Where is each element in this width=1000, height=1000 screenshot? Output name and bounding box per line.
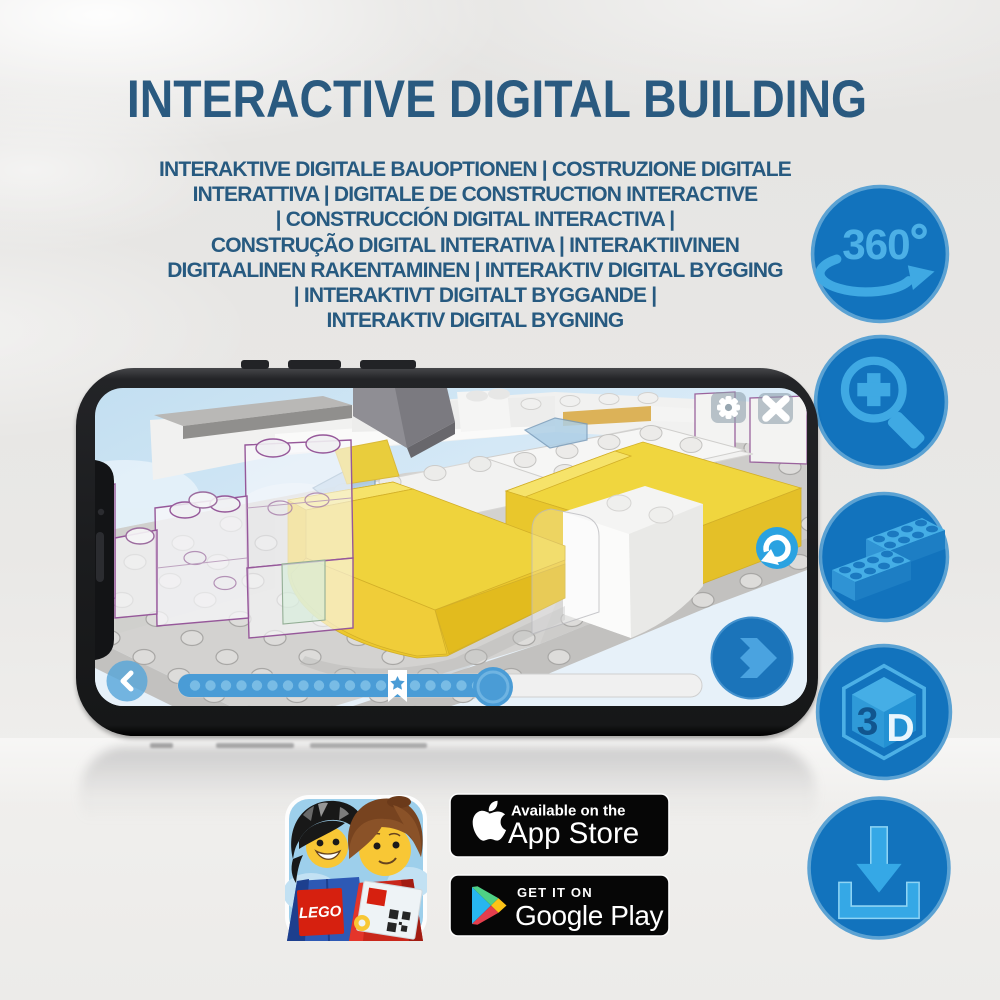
svg-text:D: D — [886, 707, 914, 750]
svg-text:GET IT ON: GET IT ON — [517, 885, 593, 900]
svg-text:Google Play: Google Play — [515, 900, 664, 931]
svg-text:LEGO: LEGO — [298, 903, 342, 922]
svg-text:360: 360 — [842, 221, 909, 268]
svg-text:3: 3 — [857, 701, 879, 744]
svg-text:App Store: App Store — [508, 817, 639, 850]
